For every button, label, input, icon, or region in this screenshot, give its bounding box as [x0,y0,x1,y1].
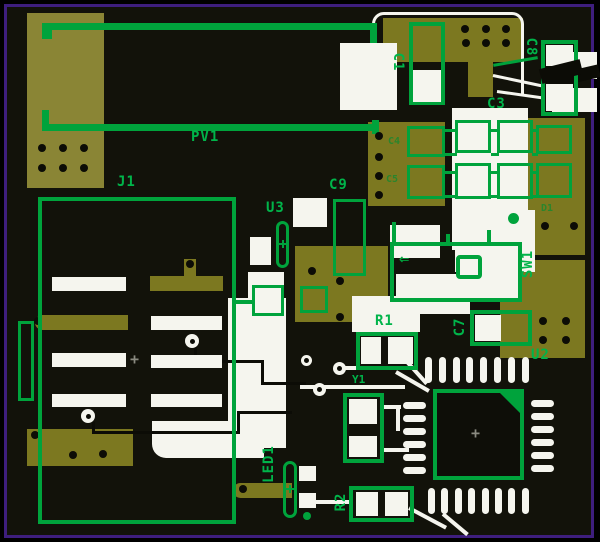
plated-hole [462,39,470,47]
plated-hole [539,317,547,325]
via-hole [304,358,309,363]
plated-hole [539,336,547,344]
qfn-center-mark: + [471,426,480,441]
plated-hole [541,222,549,230]
plated-hole [336,277,344,285]
plated-hole [59,164,67,172]
label-c5: C5 [386,175,398,185]
plated-hole [482,39,490,47]
plated-hole [502,25,510,33]
qfn-pad-left [403,402,426,409]
silk-tie-line [487,230,491,242]
plated-hole [336,313,344,321]
label-c1: C1 [391,53,405,72]
label-j1: J1 [117,175,136,189]
qfn-pad-top [522,357,529,383]
qfn-pad-top [494,357,501,383]
label-led1: LED1 [262,445,276,483]
qfn-pad-right [531,439,554,446]
qfn-pad-bottom [468,488,475,514]
silk-tie-line [445,195,457,198]
silk-tie-line [445,171,457,174]
plated-hole [482,25,490,33]
qfn-pad-top [466,357,473,383]
led1-cross-v [289,485,291,493]
sw1-actuator [456,255,482,279]
plated-hole [562,336,570,344]
pad-footprint-square [497,163,533,199]
label-c7: C7 [453,318,467,337]
plated-hole [38,164,46,172]
silk-square [536,125,572,154]
plated-hole [375,132,383,140]
qfn-pad-right [531,400,554,407]
silk-tie-line [532,129,538,132]
silk-tie-line [236,300,252,304]
via-hole [337,366,342,371]
qfn-pad-bottom [441,488,448,514]
pad-footprint-square [455,163,491,199]
plated-hole [239,485,247,493]
qfn-pad-left [403,428,426,435]
silk-tie-line [445,129,457,132]
silk-tie-line [491,129,499,132]
pad-led1-bottom [299,493,316,508]
qfn-pad-right [531,465,554,472]
label-u3: U3 [266,201,285,215]
pad-r2-left [356,492,378,516]
qfn-pad-bottom [455,488,462,514]
qfn-pad-right [531,413,554,420]
plated-hole [375,191,383,199]
pad-footprint-square [497,120,533,153]
qfn-pad-left [403,441,426,448]
pad-c8-bottom [546,84,573,111]
label-c3: C3 [487,97,506,111]
label-sw1: SW1 [521,250,535,278]
silk-diag-trace [493,56,538,67]
plated-hole [562,317,570,325]
trace-white [396,405,400,431]
qfn-pad-top [439,357,446,383]
qfn-pad-left [403,454,426,461]
qfn-pad-top [453,357,460,383]
silk-tie-line [491,153,499,156]
label-d1: D1 [541,204,553,214]
pad-footprint-square [455,120,491,153]
plated-hole [59,144,67,152]
silk-square [407,126,445,157]
pad-y1-bottom [349,436,377,457]
pad-c1 [413,70,441,102]
qfn-pad-bottom [508,488,515,514]
silk-square [407,165,445,199]
trace-white [442,512,469,536]
qfn-pad-bottom [482,488,489,514]
silk-square [300,286,328,313]
silk-tie-line [392,222,396,244]
pad-r1-left [361,337,381,364]
plated-hole [502,39,510,47]
silk-box-left-edge [18,321,34,401]
pad-r2-right [385,492,408,516]
qfn-pad-right [531,452,554,459]
silk-tie-line [532,171,538,174]
qfn-pad-bottom [522,488,529,514]
label-u2: U2 [531,348,550,362]
silk-square [252,285,284,316]
plated-hole [570,222,578,230]
j1-center-mark: + [130,352,139,367]
trace-white [381,448,409,452]
pcb-board: PV1 J1 U3 C9 C1 C8 C3 C4 C5 D1 SW1 R1 C7… [0,0,600,542]
trace-white [493,74,543,87]
pad-r1-right [388,337,413,364]
silk-tie-line [445,153,457,156]
qfn-pad-bottom [495,488,502,514]
label-y1: Y1 [352,374,365,385]
trace-dark [237,411,292,414]
pad-led1-top [299,466,316,481]
label-r2: R2 [334,493,348,512]
u3-cross-v [282,240,284,248]
label-r1: R1 [375,314,394,328]
silk-tie-line [532,195,538,198]
plated-hole [461,25,469,33]
plated-hole [375,153,383,161]
sw1-arrow-icon: ⇐ [399,251,409,268]
plated-hole [308,267,316,275]
silk-tie-line [491,195,499,198]
silk-dot [303,512,311,520]
pad-c7 [475,315,501,341]
plated-hole [375,172,383,180]
silk-tie-line [491,171,499,174]
qfn-pad-bottom [428,488,435,514]
qfn-pin1-marker [500,393,520,413]
silk-tie-line [532,153,538,156]
qfn-pad-left [403,467,426,474]
qfn-pad-top [508,357,515,383]
qfn-pad-left [403,415,426,422]
component-outline-c9 [333,199,366,276]
plated-hole [80,164,88,172]
plated-hole [80,144,88,152]
trace-dark [237,414,240,434]
qfn-pad-right [531,426,554,433]
qfn-pad-top [425,357,432,383]
plated-hole [38,144,46,152]
label-c4: C4 [388,137,400,147]
silk-square [536,163,572,198]
label-c8: C8 [524,38,538,57]
label-pv1: PV1 [191,130,219,144]
via-hole [317,387,322,392]
label-c9: C9 [329,178,348,192]
silk-dot [508,213,519,224]
pad-y1-top [349,399,377,424]
qfn-pad-top [480,357,487,383]
